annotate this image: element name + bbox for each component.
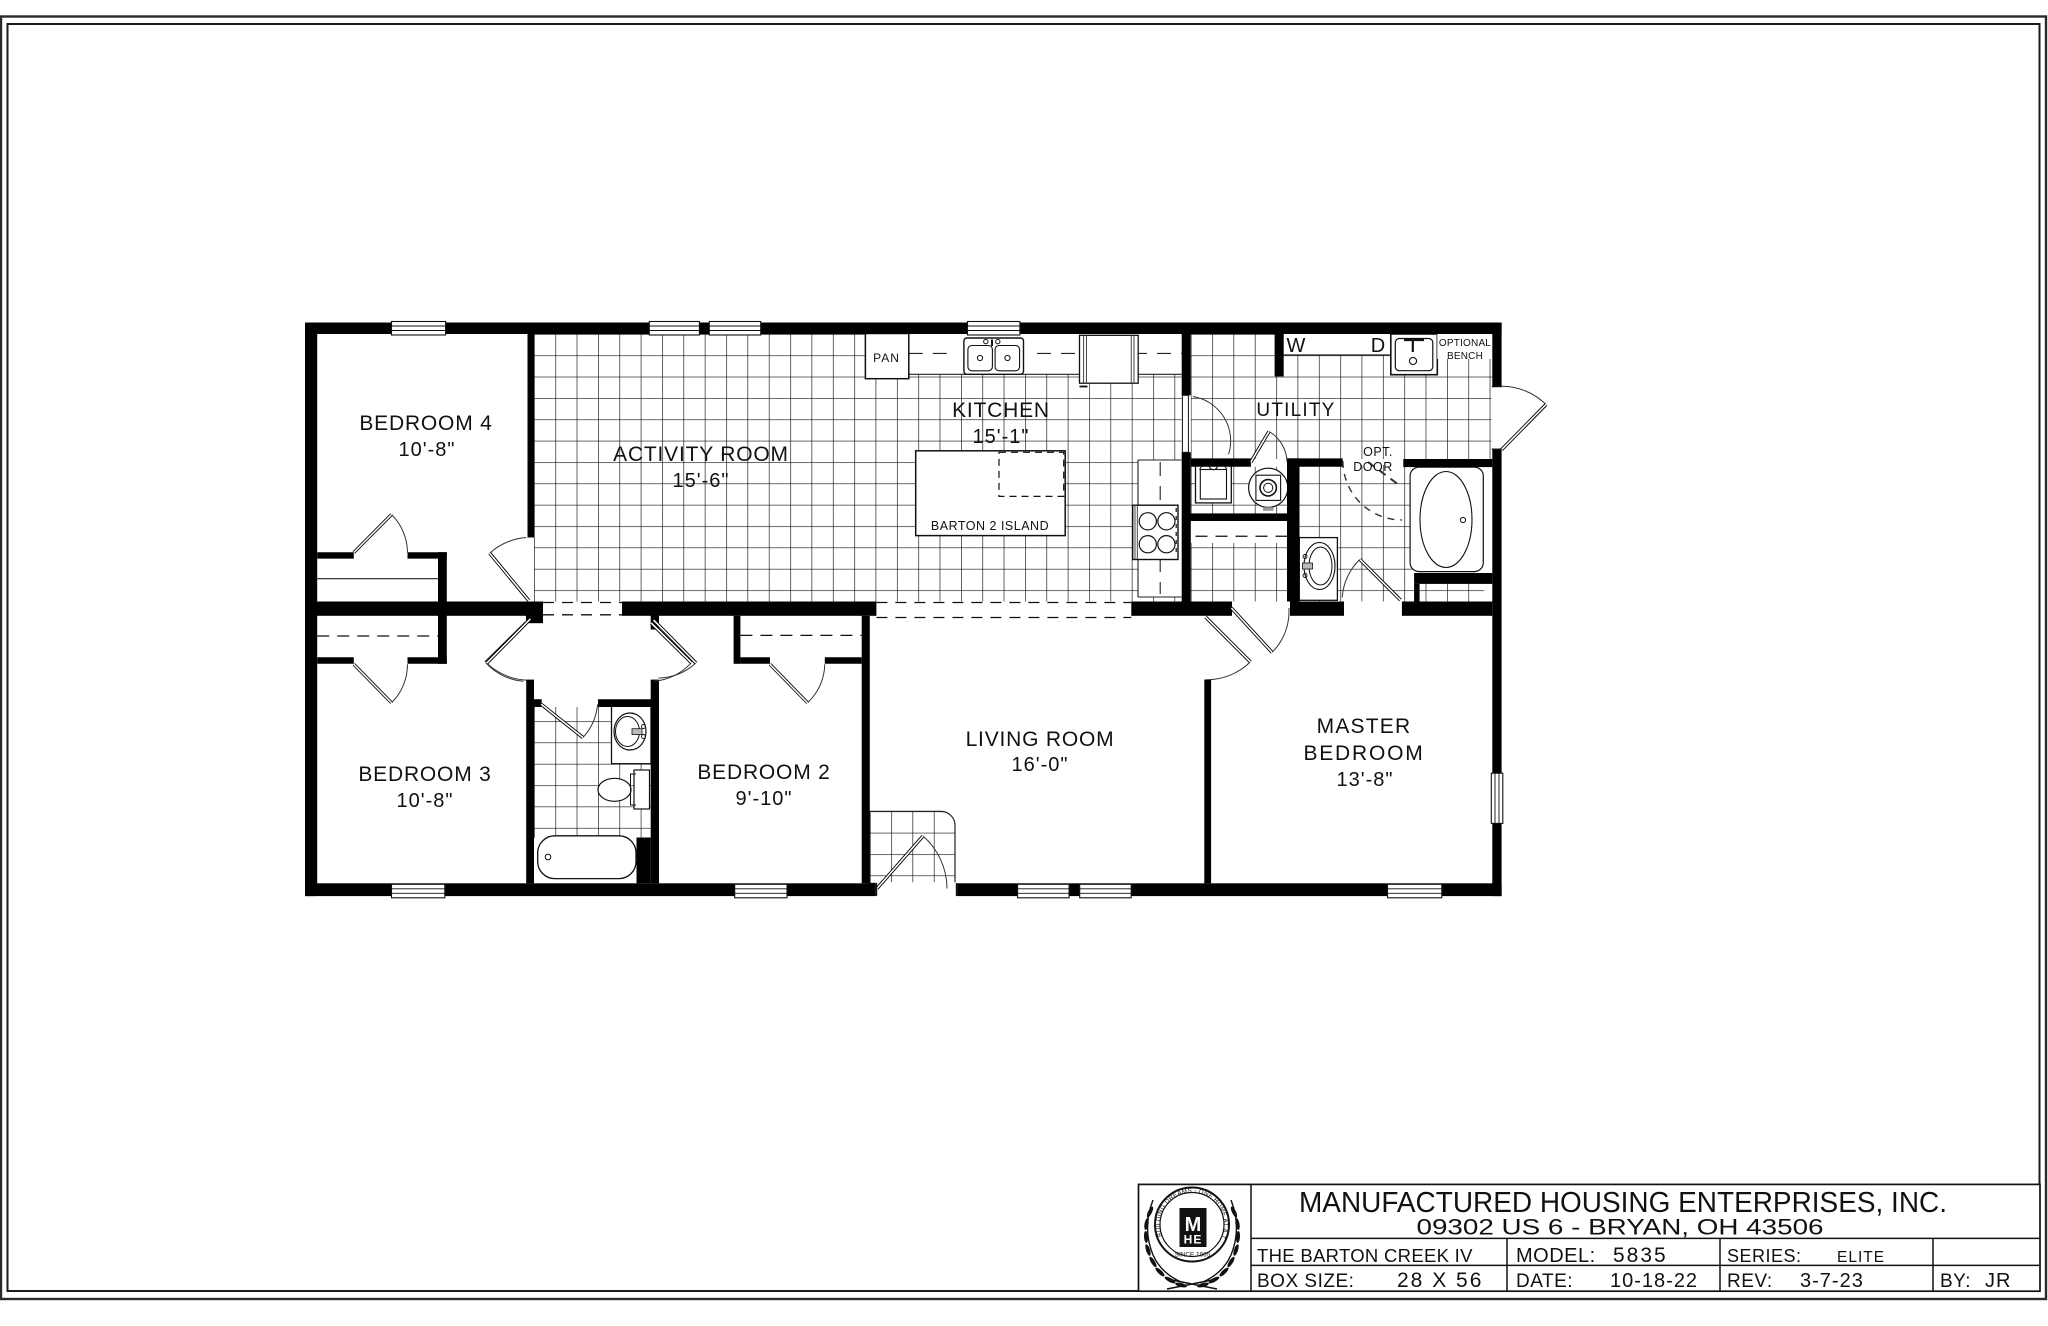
svg-text:BEDROOM 4: BEDROOM 4 [359,412,492,435]
svg-text:LIVING ROOM: LIVING ROOM [966,728,1115,751]
svg-text:10'-8": 10'-8" [397,790,454,812]
svg-text:09302 US 6 - BRYAN, OH 43506: 09302 US 6 - BRYAN, OH 43506 [1417,1215,1824,1240]
svg-text:9'-10": 9'-10" [736,788,793,810]
svg-text:13'-8": 13'-8" [1337,769,1394,791]
svg-text:HE: HE [1184,1233,1203,1247]
svg-text:D: D [1371,335,1385,357]
svg-text:BUILDING DREAMS - ONE HOME AT: BUILDING DREAMS - ONE HOME AT A TIME [0,0,1229,1240]
svg-text:10'-8": 10'-8" [399,439,456,461]
svg-text:16'-0": 16'-0" [1012,754,1069,776]
svg-text:BEDROOM 2: BEDROOM 2 [697,761,830,784]
svg-text:MODEL:5835: MODEL:5835 [1516,1244,1668,1267]
svg-text:KITCHEN: KITCHEN [952,399,1050,422]
svg-text:BEDROOM: BEDROOM [1303,742,1424,765]
svg-text:THE BARTON CREEK IV: THE BARTON CREEK IV [1257,1245,1473,1266]
svg-text:OPTIONAL: OPTIONAL [1439,338,1491,349]
svg-text:UTILITY: UTILITY [1256,400,1335,421]
svg-text:PAN: PAN [873,351,900,365]
svg-text:W: W [1287,335,1306,357]
svg-text:15'-6": 15'-6" [673,470,730,492]
svg-text:MASTER: MASTER [1317,715,1412,738]
svg-text:BEDROOM 3: BEDROOM 3 [358,763,491,786]
svg-text:15'-1": 15'-1" [973,426,1030,448]
svg-text:DOOR: DOOR [1353,460,1393,474]
svg-text:ACTIVITY ROOM: ACTIVITY ROOM [613,443,789,466]
svg-text:BENCH: BENCH [1447,351,1483,362]
svg-text:OPT.: OPT. [1363,445,1393,459]
svg-text:BARTON 2 ISLAND: BARTON 2 ISLAND [931,519,1049,533]
svg-text:SINCE 1965: SINCE 1965 [1175,1252,1211,1259]
